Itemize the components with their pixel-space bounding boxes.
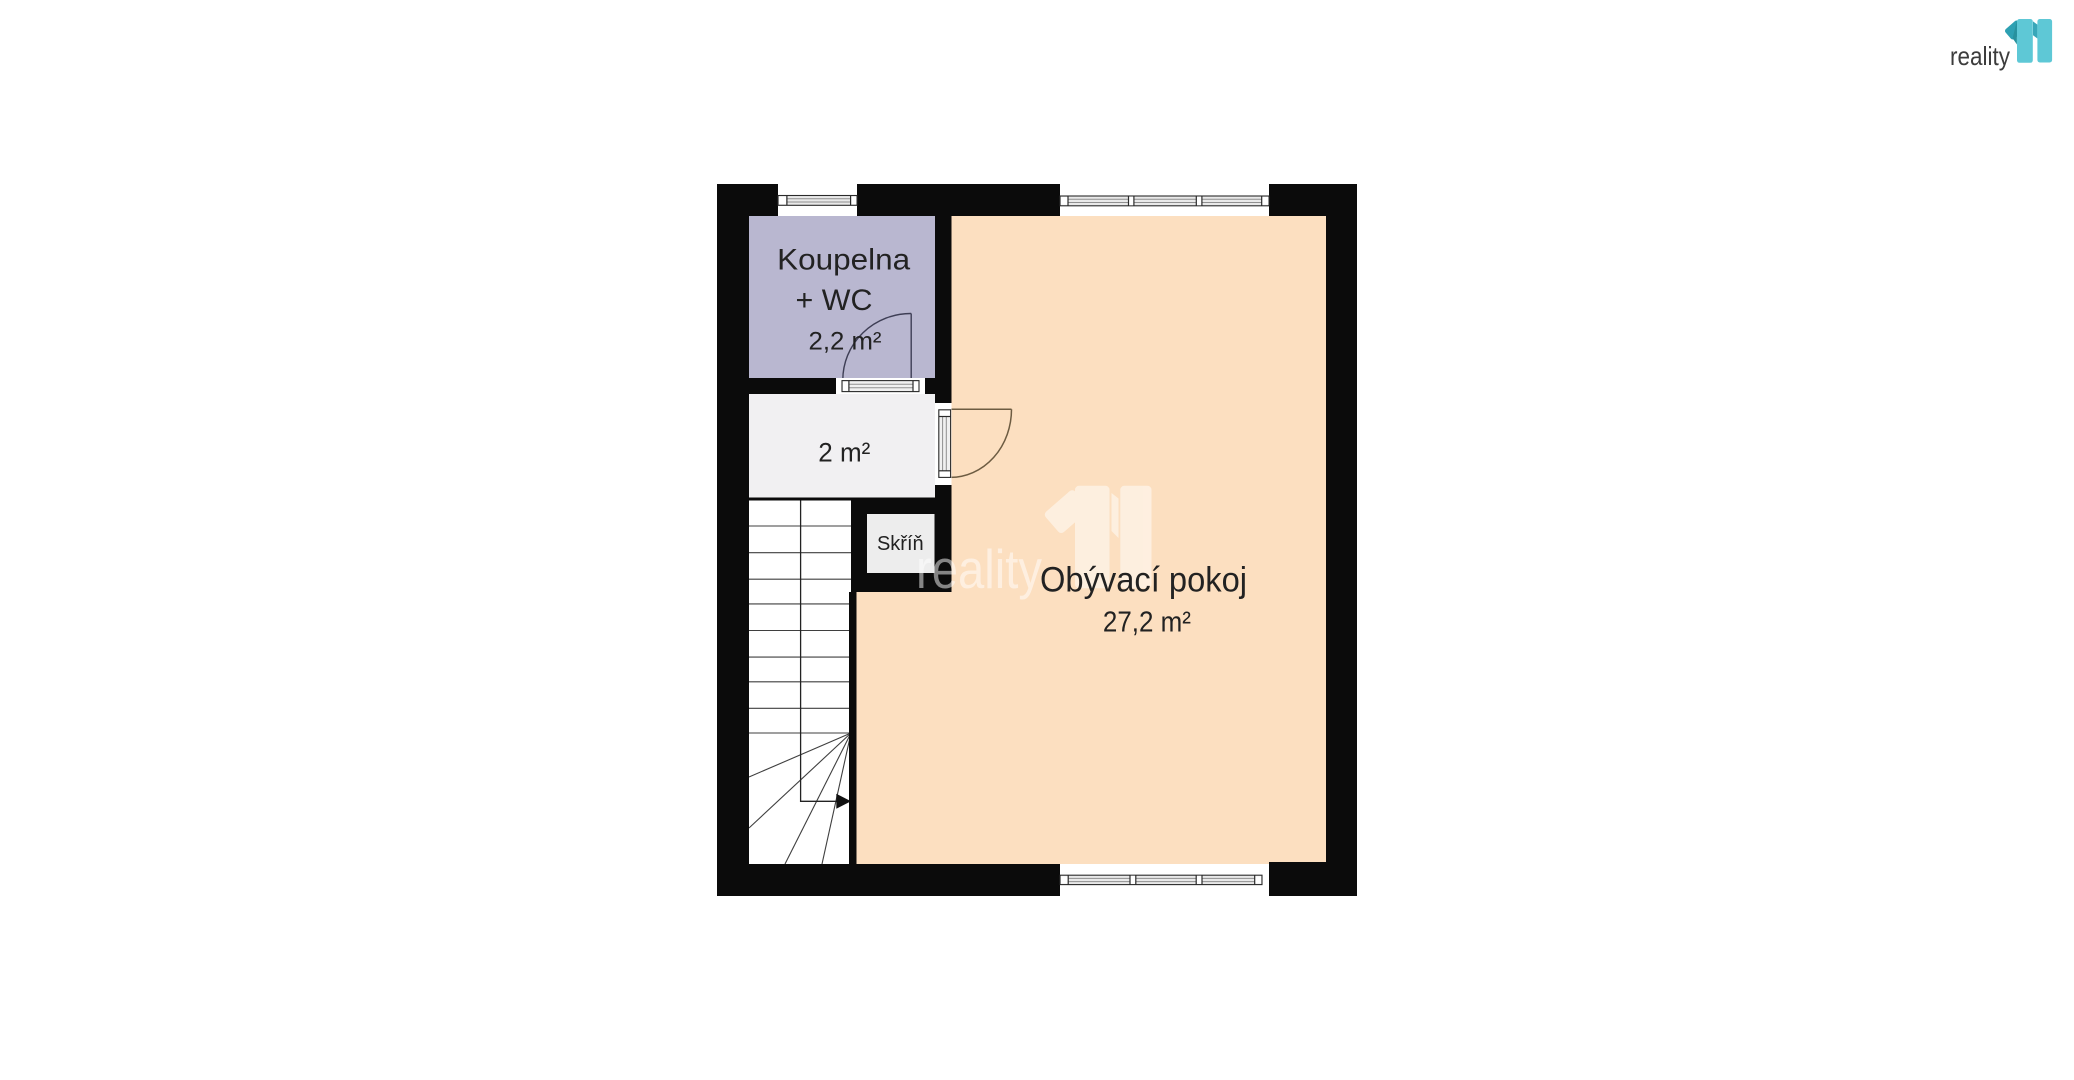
svg-text:Obývací pokoj: Obývací pokoj [1040, 560, 1247, 599]
svg-text:2 m²: 2 m² [818, 438, 870, 468]
svg-text:Koupelna: Koupelna [777, 244, 910, 277]
svg-text:reality: reality [1950, 41, 2010, 71]
svg-text:+ WC: + WC [796, 284, 873, 317]
svg-text:reality: reality [916, 538, 1042, 600]
svg-text:2,2 m²: 2,2 m² [809, 328, 882, 356]
svg-text:Skříň: Skříň [877, 533, 924, 555]
svg-text:27,2 m²: 27,2 m² [1103, 607, 1191, 639]
